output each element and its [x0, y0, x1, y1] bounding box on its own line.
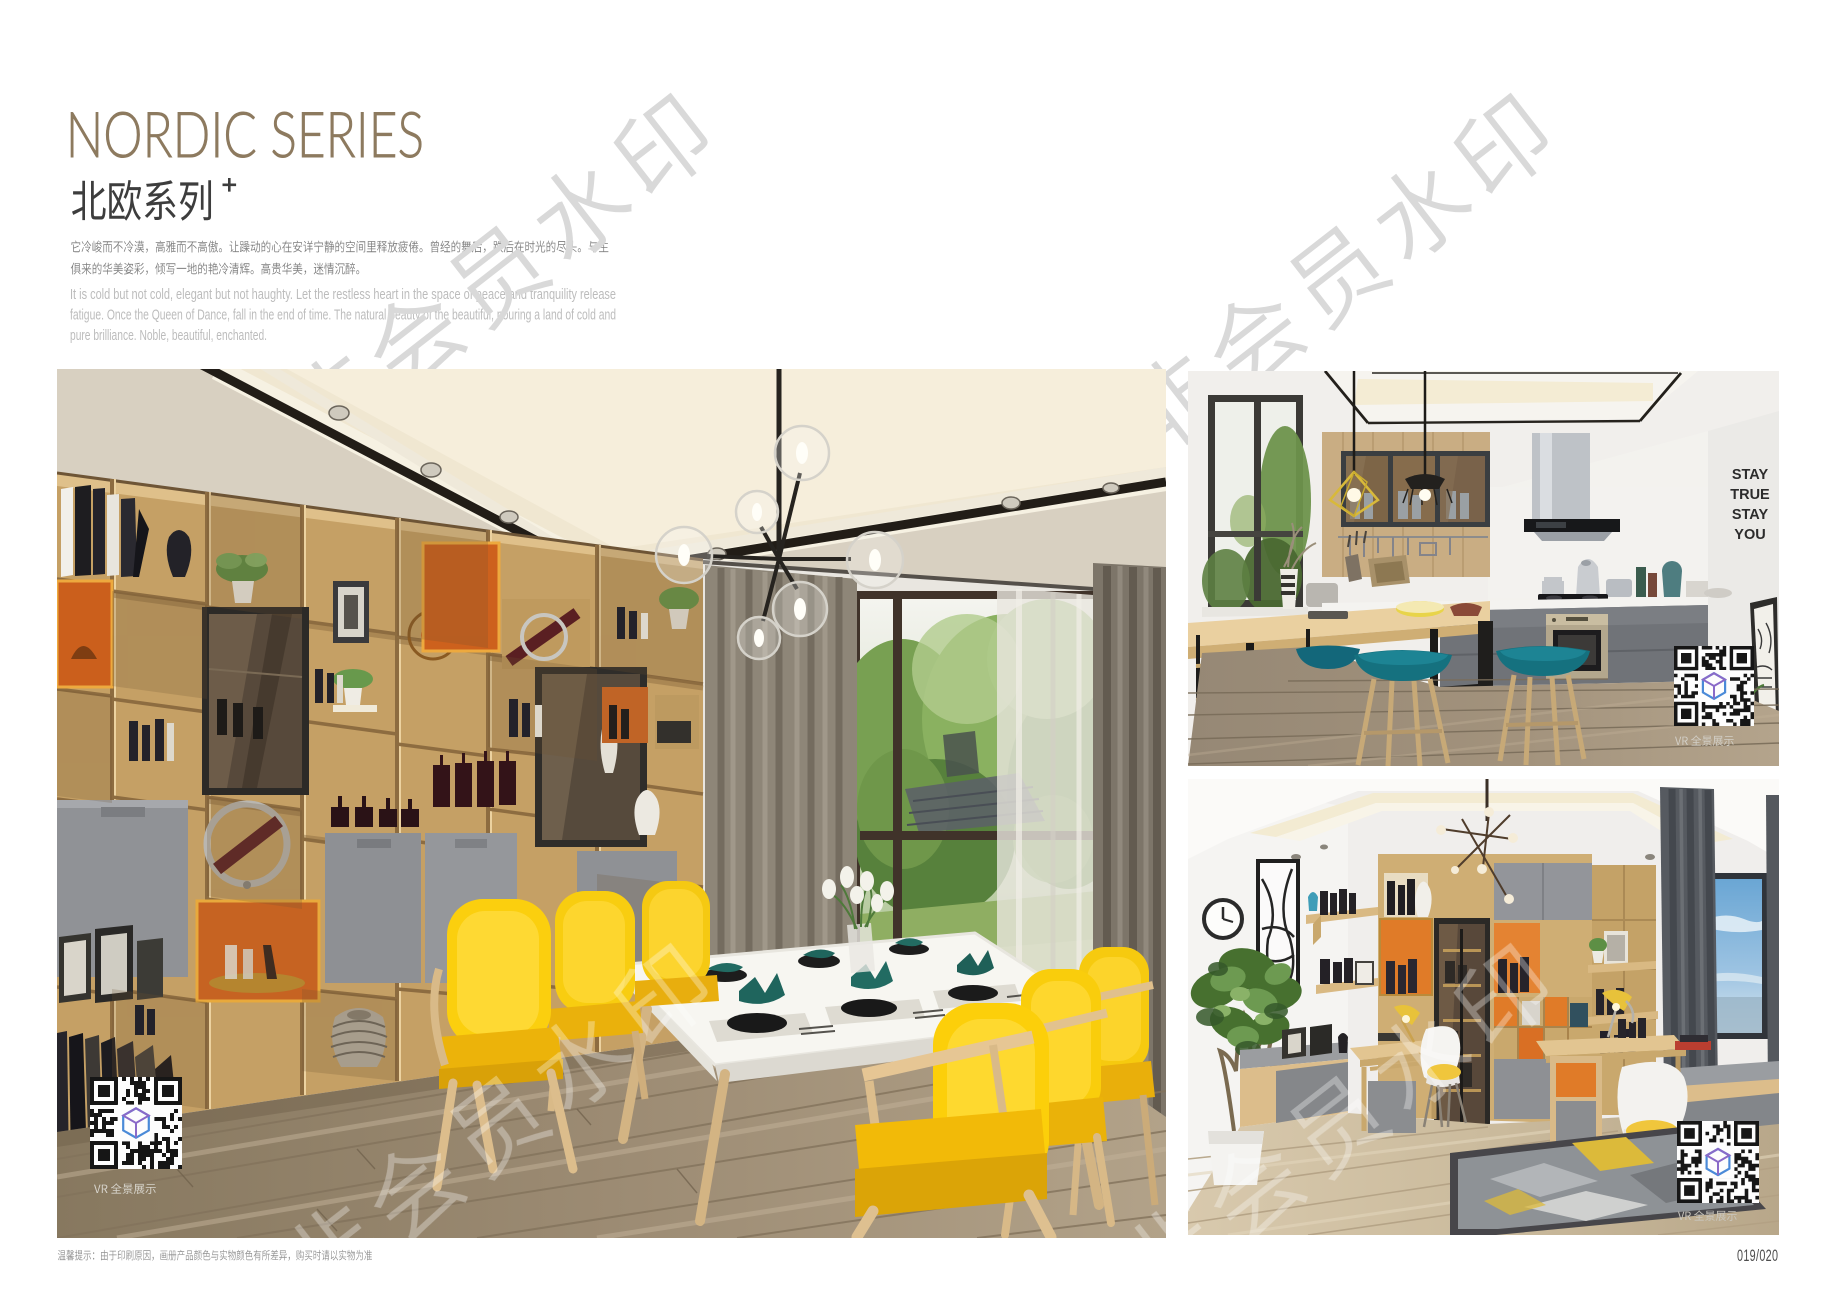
svg-text:YOU: YOU — [1734, 527, 1765, 543]
svg-text:STAY: STAY — [1732, 467, 1769, 483]
svg-text:TRUE: TRUE — [1730, 487, 1770, 503]
svg-text:STAY: STAY — [1732, 507, 1769, 523]
